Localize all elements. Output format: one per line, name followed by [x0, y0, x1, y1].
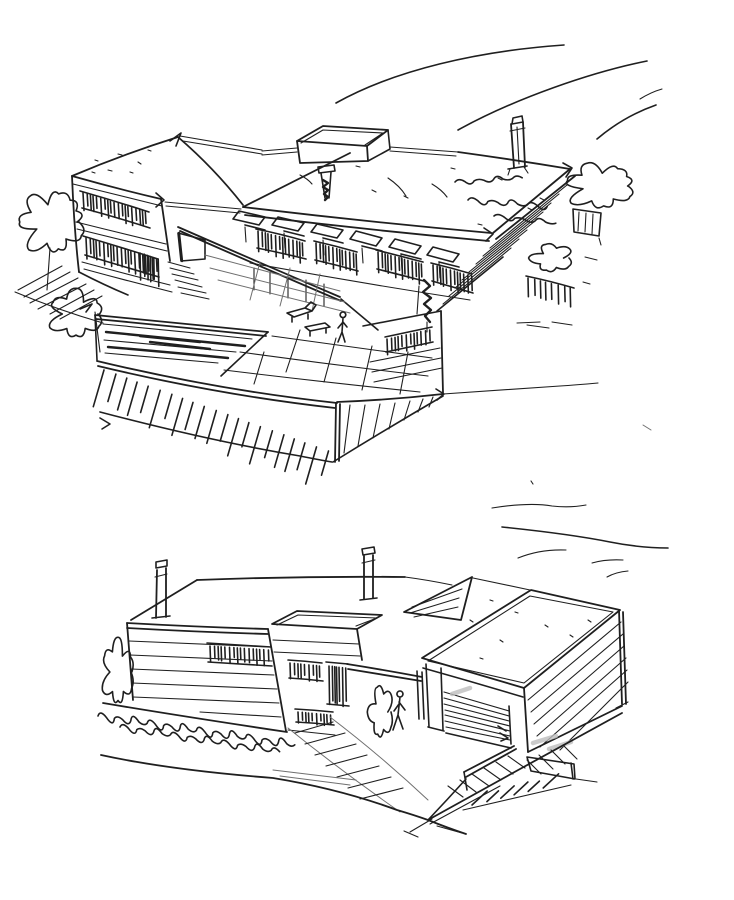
- stair-volume: [272, 611, 382, 735]
- chimney-left: [152, 560, 170, 618]
- driveway: [101, 703, 622, 837]
- patio-plant: [417, 280, 431, 332]
- garage-pier: [426, 664, 444, 731]
- loggia-glass-hatch-2: [316, 243, 357, 275]
- trees-right: [517, 163, 651, 430]
- roof-vent: [318, 165, 335, 200]
- loggia-glass-hatch-1: [258, 231, 303, 263]
- garage: [422, 590, 628, 752]
- hill-hatch-fan: [344, 397, 433, 453]
- sky-contour-lines: [336, 45, 662, 139]
- chimney: [508, 116, 528, 175]
- fence-pickets: [528, 278, 571, 307]
- walkout-level: [337, 311, 444, 402]
- stairs: [168, 262, 209, 299]
- pedestrian-figure: [393, 691, 405, 730]
- loggia: [233, 211, 473, 306]
- hill-hatch-far-left: [15, 266, 103, 323]
- sketch-canvas: [0, 0, 734, 900]
- street-view-sketch: [98, 481, 668, 837]
- deck-lounger: [287, 302, 316, 322]
- left-wing: [72, 133, 243, 295]
- person-figure: [338, 312, 347, 342]
- roof-monitor: [180, 126, 458, 163]
- chimney-right: [360, 547, 377, 600]
- aerial-view-sketch: [15, 45, 662, 484]
- side-canopy-box: [573, 209, 601, 245]
- left-wing-window-hatch-upper: [83, 193, 146, 226]
- garage-door: [444, 692, 511, 748]
- sketch-page: [0, 0, 734, 900]
- terrace: [95, 280, 432, 429]
- deck-table: [305, 323, 330, 336]
- main-volume: [127, 547, 405, 731]
- hill-contours: [492, 481, 668, 577]
- trees-left: [19, 192, 101, 352]
- stair-window-hatch-dark: [329, 666, 346, 706]
- green-roof-scribble-1: [455, 176, 522, 184]
- hill-hatch-left: [93, 370, 328, 484]
